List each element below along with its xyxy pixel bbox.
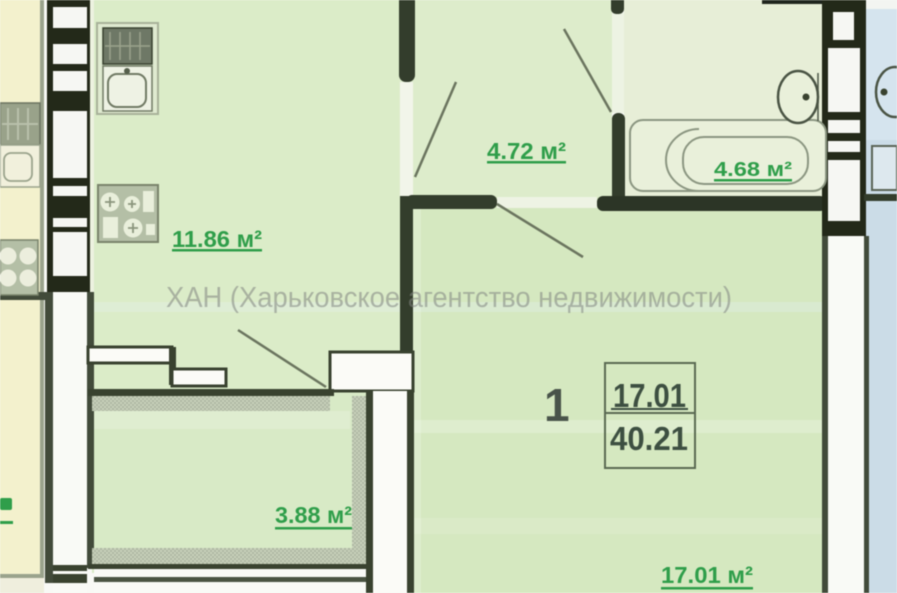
svg-text:11.86 м²: 11.86 м² [172,226,262,252]
svg-text:3.88 м²: 3.88 м² [275,502,352,528]
svg-text:4.72 м²: 4.72 м² [487,138,566,164]
svg-text:40.21: 40.21 [610,420,688,457]
svg-text:4.68 м²: 4.68 м² [714,159,792,181]
svg-text:1: 1 [544,379,570,431]
svg-text:17.01 м²: 17.01 м² [661,562,753,588]
svg-text:ХАН (Харьковское агентство нед: ХАН (Харьковское агентство недвижимости) [166,282,732,314]
